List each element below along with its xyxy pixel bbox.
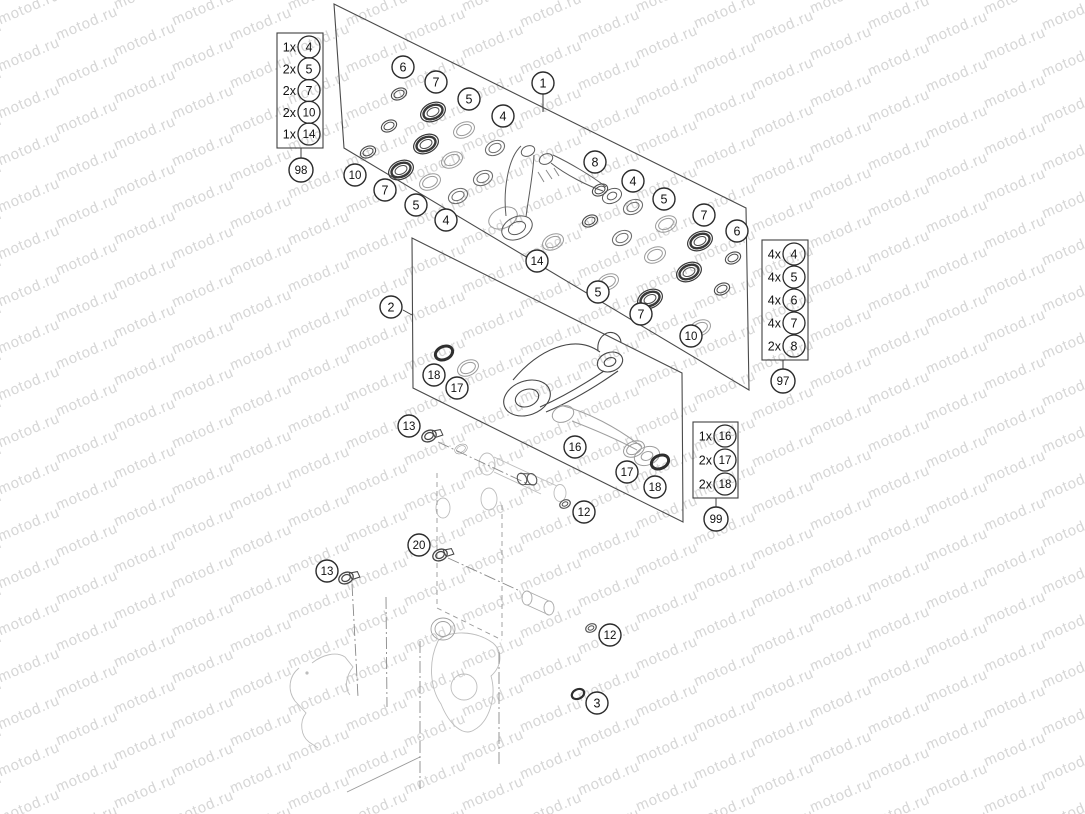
frame-curve-left-2 xyxy=(312,654,353,695)
legend-item: 2x5 xyxy=(283,58,320,80)
part-bearing xyxy=(417,98,448,125)
legend-ref-number: 10 xyxy=(303,107,316,119)
callout-number: 17 xyxy=(451,383,464,395)
part-seal xyxy=(621,196,645,217)
part-bolt xyxy=(337,568,360,587)
callout-number: 18 xyxy=(649,482,662,494)
leader-line xyxy=(403,310,412,315)
frame-curve-left xyxy=(290,668,318,748)
linkage-arm xyxy=(499,332,626,422)
callout-number: 98 xyxy=(295,165,308,177)
arm-clevis-top xyxy=(598,332,621,351)
callout-number: 10 xyxy=(685,331,698,343)
legend-item: 2x18 xyxy=(699,473,736,495)
part-bearing xyxy=(673,258,704,285)
callout-5: 5 xyxy=(405,194,427,216)
callout-number: 6 xyxy=(734,225,741,239)
callout-number: 4 xyxy=(630,175,637,189)
callout-7: 7 xyxy=(630,303,652,325)
part-washer xyxy=(439,149,465,172)
legend-ref-number: 5 xyxy=(306,62,313,76)
callout-20: 20 xyxy=(408,534,430,556)
legend-item: 2x17 xyxy=(699,449,736,471)
callout-13: 13 xyxy=(398,415,420,437)
callout-97: 97 xyxy=(771,369,795,393)
callout-5: 5 xyxy=(653,188,675,210)
arm-top-edge xyxy=(513,344,600,380)
arm-bottom-edge xyxy=(546,371,618,412)
part-bolt xyxy=(431,545,454,564)
centerline xyxy=(352,584,358,697)
callout-5: 5 xyxy=(458,88,480,110)
part-oring xyxy=(580,213,599,230)
casting-back-boss xyxy=(485,203,521,234)
legend-qty: 1x xyxy=(283,41,297,55)
legend-qty: 4x xyxy=(768,317,782,331)
legend-qty: 1x xyxy=(283,128,297,142)
part-seal xyxy=(471,167,495,188)
callout-number: 4 xyxy=(443,214,450,228)
arm-eye-outer xyxy=(595,349,626,376)
bracket-tube-1 xyxy=(479,453,495,475)
bracket-tube-3 xyxy=(436,498,450,518)
legend-item: 1x14 xyxy=(283,123,320,145)
callout-6: 6 xyxy=(392,56,414,78)
frame-bottom-line xyxy=(347,757,420,792)
callout-7: 7 xyxy=(374,179,396,201)
part-oring xyxy=(389,86,408,103)
callout-number: 99 xyxy=(710,514,723,526)
callout-number: 5 xyxy=(661,193,668,207)
legend-qty: 2x xyxy=(768,340,782,354)
callout-number: 7 xyxy=(433,76,440,90)
callout-17: 17 xyxy=(616,461,638,483)
legend-ref-number: 4 xyxy=(791,248,798,262)
legend-ref-number: 4 xyxy=(306,41,313,55)
callout-14: 14 xyxy=(526,250,548,272)
legend-qty: 4x xyxy=(768,271,782,285)
casting-boss-inner xyxy=(506,219,527,237)
frame-dot xyxy=(305,671,308,674)
arm-boss-inner xyxy=(513,386,541,410)
part-odark xyxy=(433,343,455,362)
callout-99: 99 xyxy=(704,507,728,531)
callout-number: 17 xyxy=(621,467,634,479)
arm-boss-outer xyxy=(499,374,556,422)
part-washer xyxy=(540,231,566,254)
part-oring xyxy=(379,118,398,135)
callout-5: 5 xyxy=(587,281,609,303)
arm-eye-inner xyxy=(603,356,617,368)
parts-diagram-page: motod.rumotod.rumotod.rumotod.rumotod.ru… xyxy=(0,0,1085,814)
callout-3: 3 xyxy=(586,692,608,714)
callout-4: 4 xyxy=(622,170,644,192)
legend-qty: 2x xyxy=(699,478,713,492)
centerline xyxy=(448,558,520,591)
part-washer xyxy=(621,438,647,461)
ghost-arm xyxy=(550,403,662,469)
legend-item: 4x4 xyxy=(768,243,805,265)
callout-number: 14 xyxy=(531,256,544,268)
cross-tube-end xyxy=(554,485,566,502)
callout-number: 13 xyxy=(321,566,334,578)
callout-number: 20 xyxy=(413,540,426,552)
legend-box-98: 1x42x52x72x101x1498 xyxy=(277,33,323,182)
faint-frame-artwork xyxy=(290,453,566,792)
shock-clevis-outline xyxy=(432,633,500,732)
legend-ref-number: 14 xyxy=(303,129,316,141)
callout-number: 97 xyxy=(777,376,790,388)
callout-2: 2 xyxy=(380,296,402,318)
casting-arm-edge-2 xyxy=(526,155,534,217)
part-seal xyxy=(483,137,507,158)
legend-item: 2x7 xyxy=(283,80,320,102)
legend-ref-number: 6 xyxy=(791,294,798,308)
clevis-hole xyxy=(451,674,477,700)
part-oring xyxy=(712,281,731,298)
centerline xyxy=(386,597,387,707)
part-washer xyxy=(455,357,481,380)
centerline xyxy=(438,442,526,483)
callout-16: 16 xyxy=(564,436,586,458)
part-bearing xyxy=(684,227,715,254)
callout-number: 5 xyxy=(595,286,602,300)
callout-7: 7 xyxy=(425,71,447,93)
part-seal xyxy=(446,185,470,206)
callout-number: 5 xyxy=(413,199,420,213)
callout-4: 4 xyxy=(492,105,514,127)
callout-number: 10 xyxy=(349,170,362,182)
callout-7: 7 xyxy=(693,204,715,226)
part-bolt xyxy=(420,426,443,445)
legend-ref-number: 16 xyxy=(719,431,732,443)
part-bearing xyxy=(410,130,441,157)
callout-number: 12 xyxy=(578,507,591,519)
legend-qty: 2x xyxy=(283,62,297,76)
callout-1: 1 xyxy=(532,72,554,94)
callout-12: 12 xyxy=(599,624,621,646)
part-tiny xyxy=(558,498,571,510)
bracket-tube-2 xyxy=(481,488,497,510)
part-seal xyxy=(610,227,634,248)
callout-number: 7 xyxy=(701,209,708,223)
part-washer xyxy=(653,213,679,236)
mount-hole-inner xyxy=(435,622,451,637)
part-washer xyxy=(417,171,443,194)
callout-10: 10 xyxy=(680,325,702,347)
part-washer xyxy=(642,244,668,267)
casting-hatch xyxy=(538,168,559,182)
callout-6: 6 xyxy=(726,220,748,242)
legend-qty: 1x xyxy=(699,430,713,444)
legend-item: 1x4 xyxy=(283,36,320,58)
part-washer xyxy=(453,442,469,456)
legend-qty: 4x xyxy=(768,294,782,308)
callout-number: 6 xyxy=(400,61,407,75)
legend-qty: 2x xyxy=(283,106,297,120)
part-oring xyxy=(723,250,742,267)
callout-18: 18 xyxy=(423,364,445,386)
legend-box-99: 1x162x172x1899 xyxy=(693,422,738,531)
callout-13: 13 xyxy=(316,560,338,582)
lower-sleeve-end-1 xyxy=(522,591,532,605)
callout-10: 10 xyxy=(344,164,366,186)
callout-12: 12 xyxy=(573,501,595,523)
legend-ref-number: 8 xyxy=(791,340,798,354)
legend-ref-number: 18 xyxy=(719,479,732,491)
callout-number: 3 xyxy=(594,697,601,711)
callout-number: 18 xyxy=(428,370,441,382)
callout-number: 8 xyxy=(592,156,599,170)
callout-18: 18 xyxy=(644,476,666,498)
callout-4: 4 xyxy=(435,209,457,231)
legend-item: 1x16 xyxy=(699,425,736,447)
casting-arm-edge-1 xyxy=(505,146,521,216)
casting-eye-outer xyxy=(600,185,624,206)
legend-qty: 2x xyxy=(283,84,297,98)
casting-eye-inner xyxy=(606,191,618,202)
legend-ref-number: 7 xyxy=(791,317,798,331)
exploded-parts-diagram: 1267548457610754145710181713161718122013… xyxy=(0,0,1085,814)
legend-ref-number: 17 xyxy=(719,455,732,467)
legend-qty: 2x xyxy=(699,454,713,468)
part-odark xyxy=(570,687,586,701)
callout-98: 98 xyxy=(289,158,313,182)
legend-item: 4x7 xyxy=(768,312,805,334)
legend-ref-number: 5 xyxy=(791,271,798,285)
callout-number: 1 xyxy=(540,77,547,91)
legend-ref-number: 7 xyxy=(306,84,313,98)
part-tiny xyxy=(584,622,597,634)
legend-item: 2x10 xyxy=(283,101,320,123)
centerlines xyxy=(352,442,526,789)
legend-item: 2x8 xyxy=(768,335,805,357)
callout-number: 16 xyxy=(569,442,582,454)
lower-sleeve-end-2 xyxy=(544,601,554,615)
callout-number: 4 xyxy=(500,110,507,124)
callout-number: 13 xyxy=(403,421,416,433)
legend-item: 4x5 xyxy=(768,266,805,288)
legend-qty: 4x xyxy=(768,248,782,262)
callout-17: 17 xyxy=(446,377,468,399)
callout-number: 12 xyxy=(604,630,617,642)
callout-number: 5 xyxy=(466,93,473,107)
callout-number: 7 xyxy=(382,184,389,198)
legend-box-97: 4x44x54x64x72x897 xyxy=(762,240,808,393)
callout-number: 2 xyxy=(388,301,395,315)
part-washer xyxy=(451,119,477,142)
legend-item: 4x6 xyxy=(768,289,805,311)
callout-8: 8 xyxy=(584,151,606,173)
callout-number: 7 xyxy=(638,308,645,322)
